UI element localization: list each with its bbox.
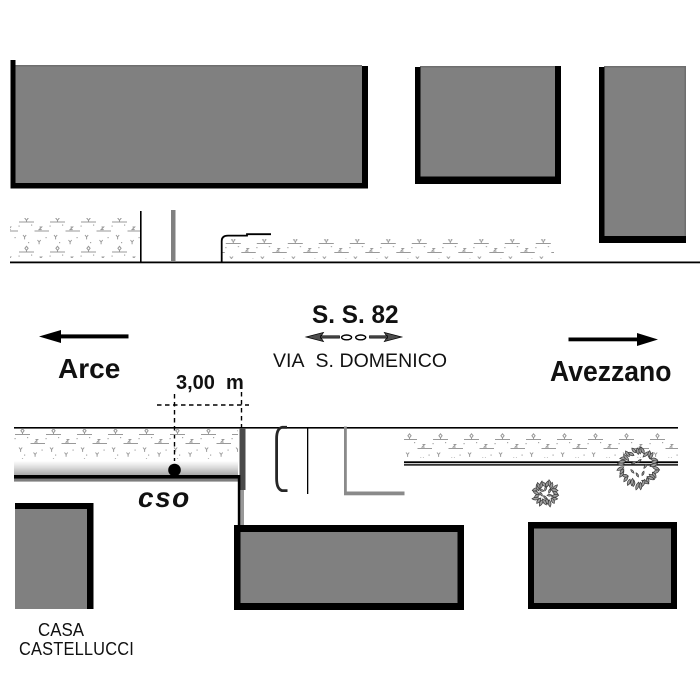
- svg-text:Arce: Arce: [58, 353, 120, 384]
- svg-text:3,00 m: 3,00 m: [176, 372, 244, 394]
- svg-text:cso: cso: [138, 482, 191, 513]
- svg-text:S. S. 82: S. S. 82: [312, 301, 399, 329]
- svg-text:CASA: CASA: [38, 620, 84, 640]
- svg-text:Avezzano: Avezzano: [550, 356, 672, 388]
- svg-text:VIA S. DOMENICO: VIA S. DOMENICO: [273, 350, 447, 372]
- svg-text:CASTELLUCCI: CASTELLUCCI: [19, 639, 134, 659]
